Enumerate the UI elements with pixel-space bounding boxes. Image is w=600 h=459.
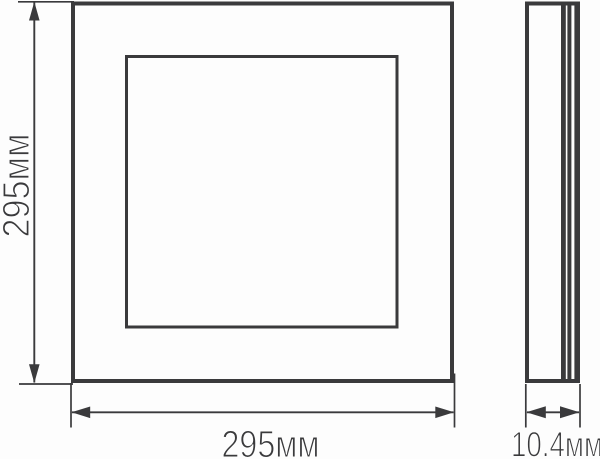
svg-text:10.4мм: 10.4мм: [511, 426, 600, 459]
svg-text:295мм: 295мм: [222, 424, 320, 459]
svg-text:295мм: 295мм: [0, 134, 38, 238]
